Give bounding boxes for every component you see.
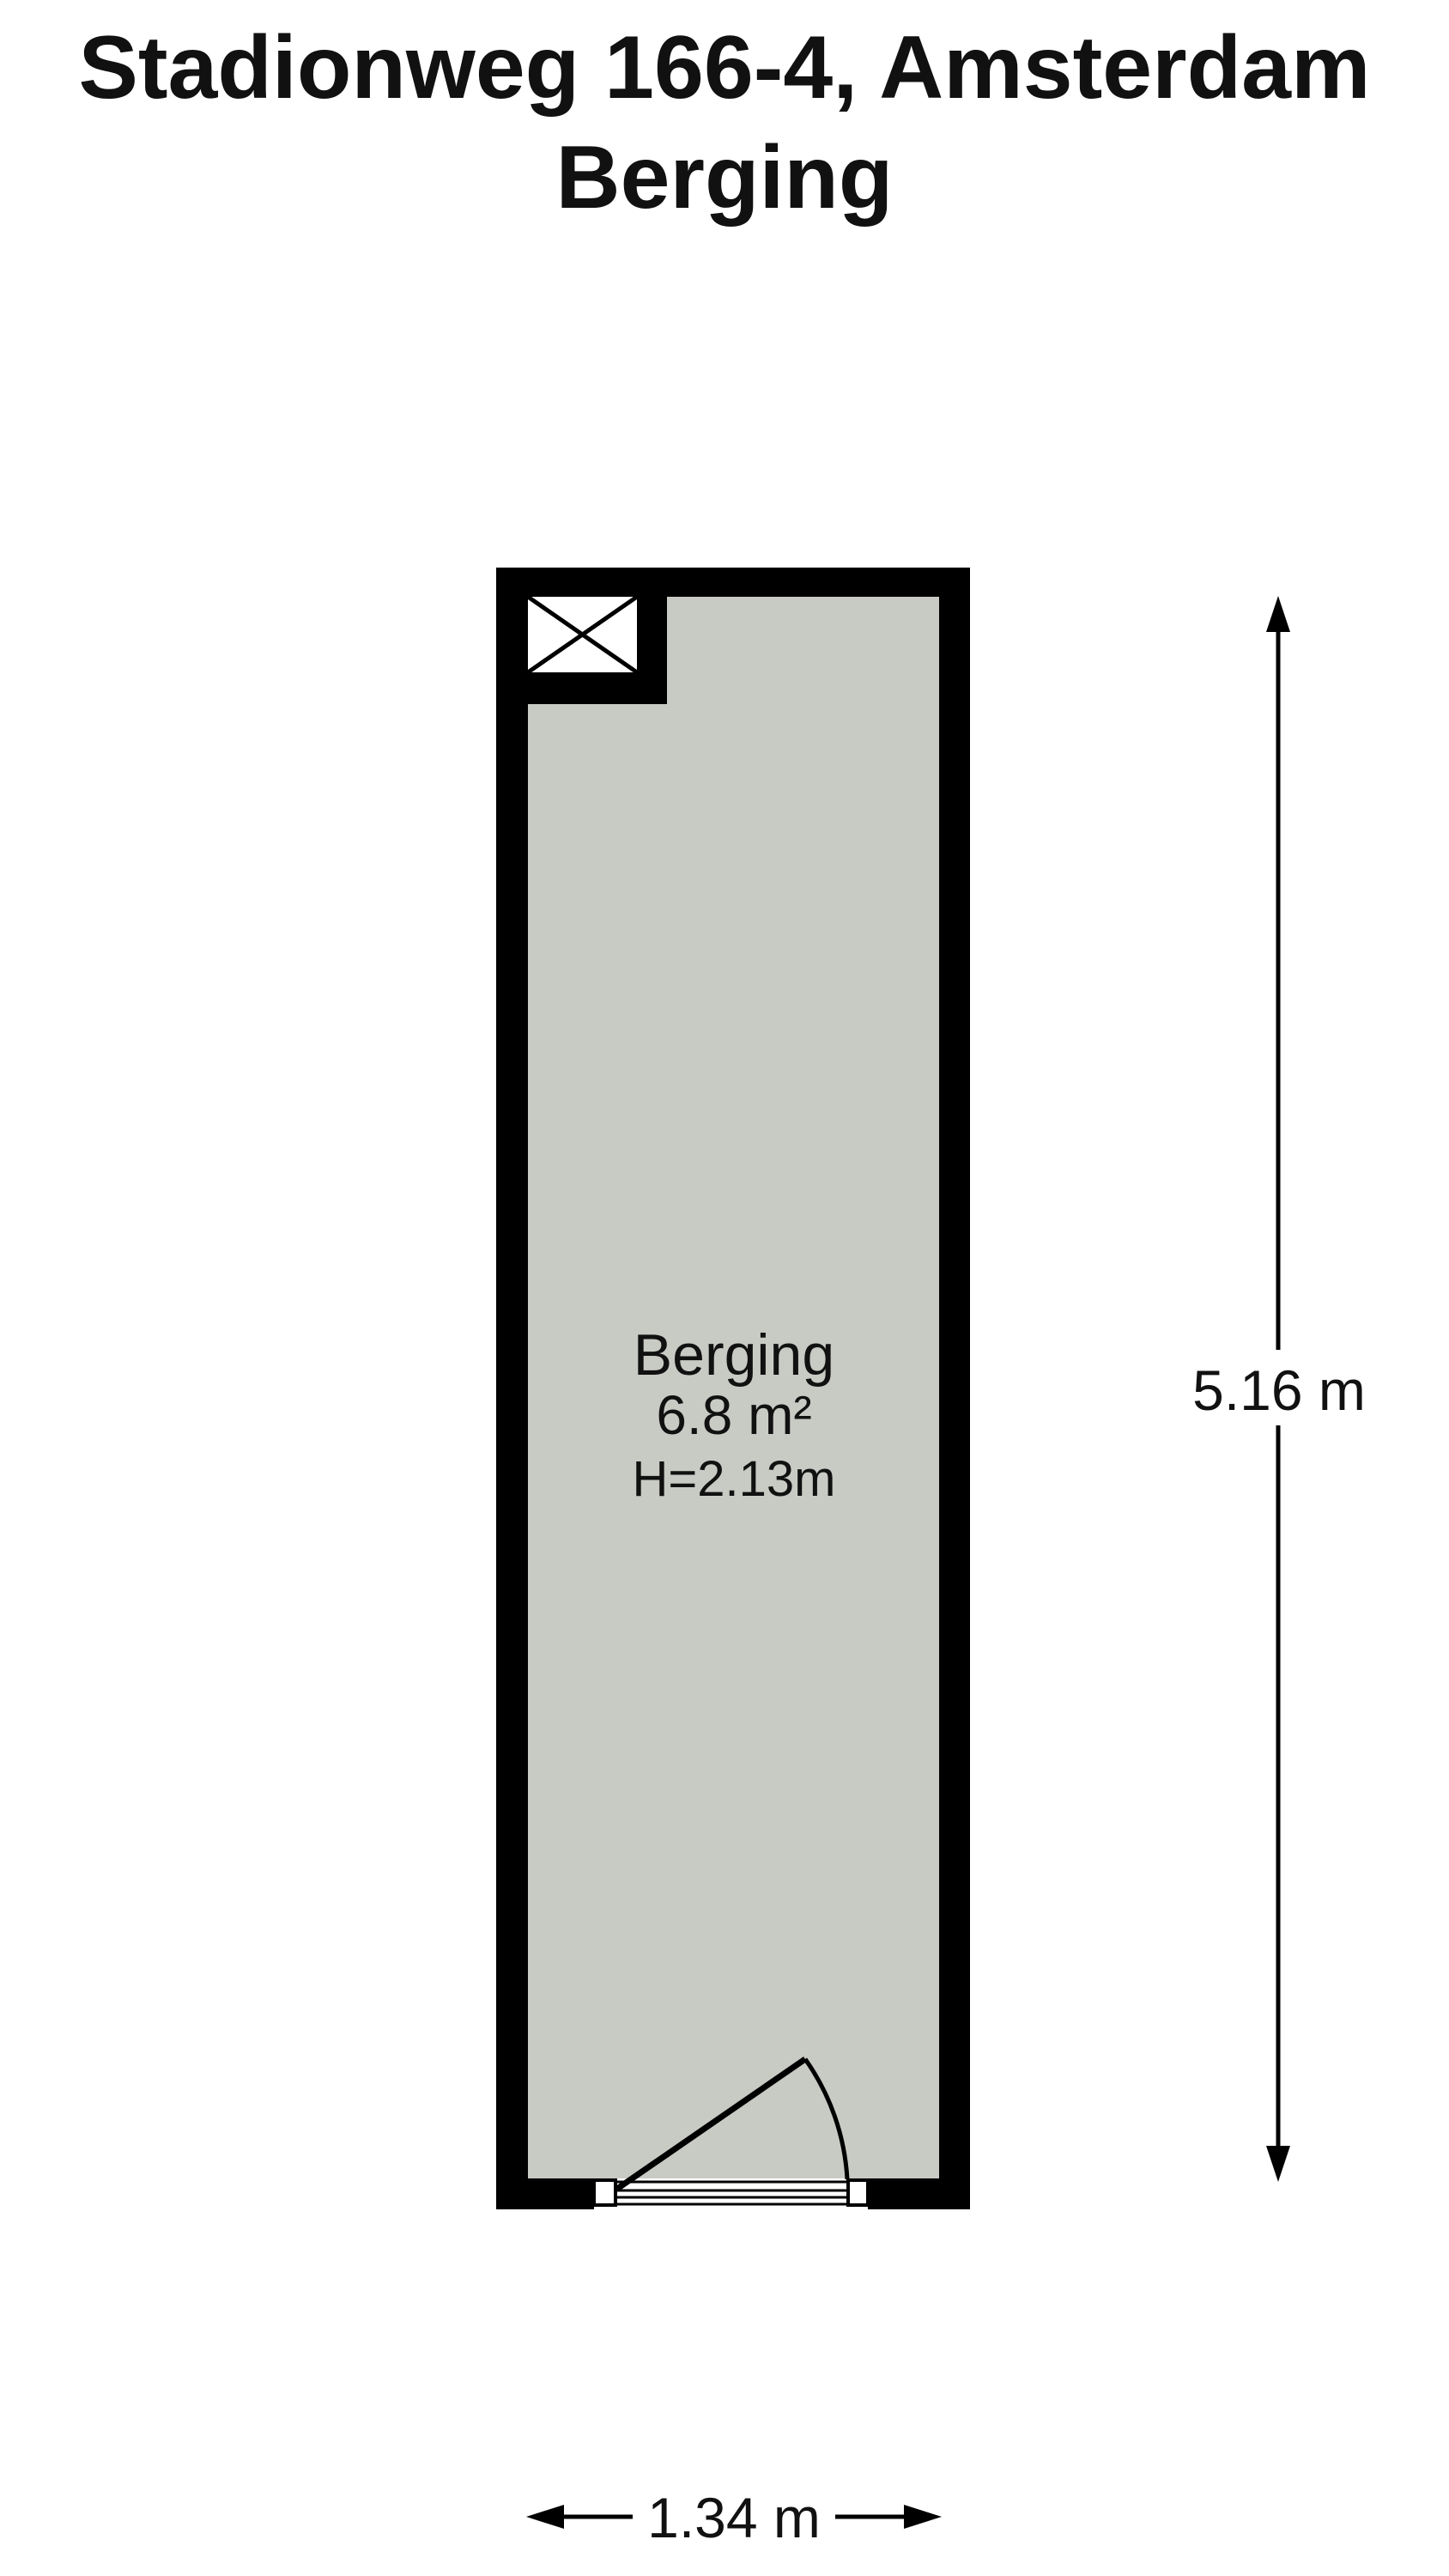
height-dimension-label: 5.16 m — [1192, 1358, 1366, 1422]
width-dimension-arrow-left — [526, 2505, 564, 2529]
width-dimension-arrow-right — [904, 2505, 942, 2529]
floorplan-canvas: Stadionweg 166-4, Amsterdam Berging 5.16… — [0, 0, 1449, 2576]
door-threshold — [615, 2182, 848, 2204]
door-right-jamb — [848, 2180, 868, 2205]
room-name-label: Berging — [634, 1322, 834, 1388]
width-dimension-label: 1.34 m — [647, 2486, 821, 2549]
height-dimension-arrow-up — [1266, 596, 1290, 632]
page-title-line1: Stadionweg 166-4, Amsterdam — [79, 18, 1371, 118]
height-dimension-arrow-down — [1266, 2146, 1290, 2182]
room-ceiling-height-label: H=2.13m — [633, 1451, 836, 1507]
page-title-line2: Berging — [556, 128, 894, 228]
door-left-jamb — [594, 2180, 615, 2205]
floorplan-page: Stadionweg 166-4, Amsterdam Berging 5.16… — [0, 0, 1449, 2576]
room-area-label: 6.8 m² — [656, 1384, 811, 1446]
